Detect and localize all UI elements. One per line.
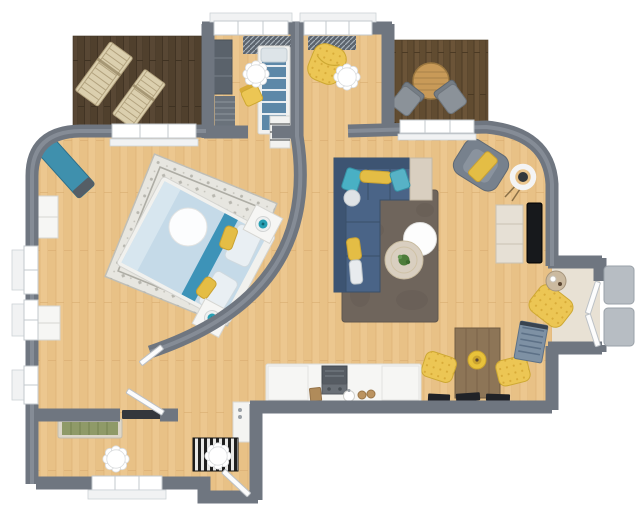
- scalloped-ceiling-light: [243, 61, 269, 87]
- window-bottom-left: [88, 476, 166, 499]
- refrigerator-cabinet: [233, 402, 251, 442]
- outdoor-step: [604, 308, 634, 346]
- cutting-board: [309, 387, 321, 401]
- chaise-end-table: [410, 158, 432, 200]
- ceiling-light: [169, 208, 207, 246]
- green-slat-bench: [58, 419, 122, 438]
- floor-plan-svg: [0, 0, 640, 514]
- window-top-b: [300, 13, 376, 35]
- entry-side-table: [546, 271, 566, 291]
- slat-rack: [215, 96, 235, 126]
- scalloped-ceiling-light: [205, 443, 231, 469]
- window-top-a: [210, 13, 292, 35]
- wardrobe: [214, 40, 232, 94]
- dining-table: [455, 328, 500, 398]
- window-under-right-balcony: [398, 120, 476, 140]
- window-under-left-balcony: [110, 124, 198, 146]
- range-with-hood: [322, 366, 347, 394]
- scalloped-ceiling-light: [103, 446, 129, 472]
- wall-tv: [527, 203, 542, 263]
- window-left-3: [12, 366, 38, 404]
- floor-plan-canvas: [0, 0, 640, 514]
- outdoor-step: [604, 266, 634, 304]
- tv-sideboard: [496, 205, 523, 263]
- balcony-left: [73, 36, 206, 129]
- wood-roll: [358, 391, 366, 399]
- window-left-2: [12, 300, 38, 340]
- round-side-table-with-plant: [385, 241, 423, 279]
- wood-roll: [367, 390, 375, 398]
- window-left-1: [12, 246, 38, 294]
- scalloped-ceiling-light: [334, 64, 360, 90]
- balcony-right: [385, 40, 488, 125]
- wall-radiator: [514, 321, 548, 363]
